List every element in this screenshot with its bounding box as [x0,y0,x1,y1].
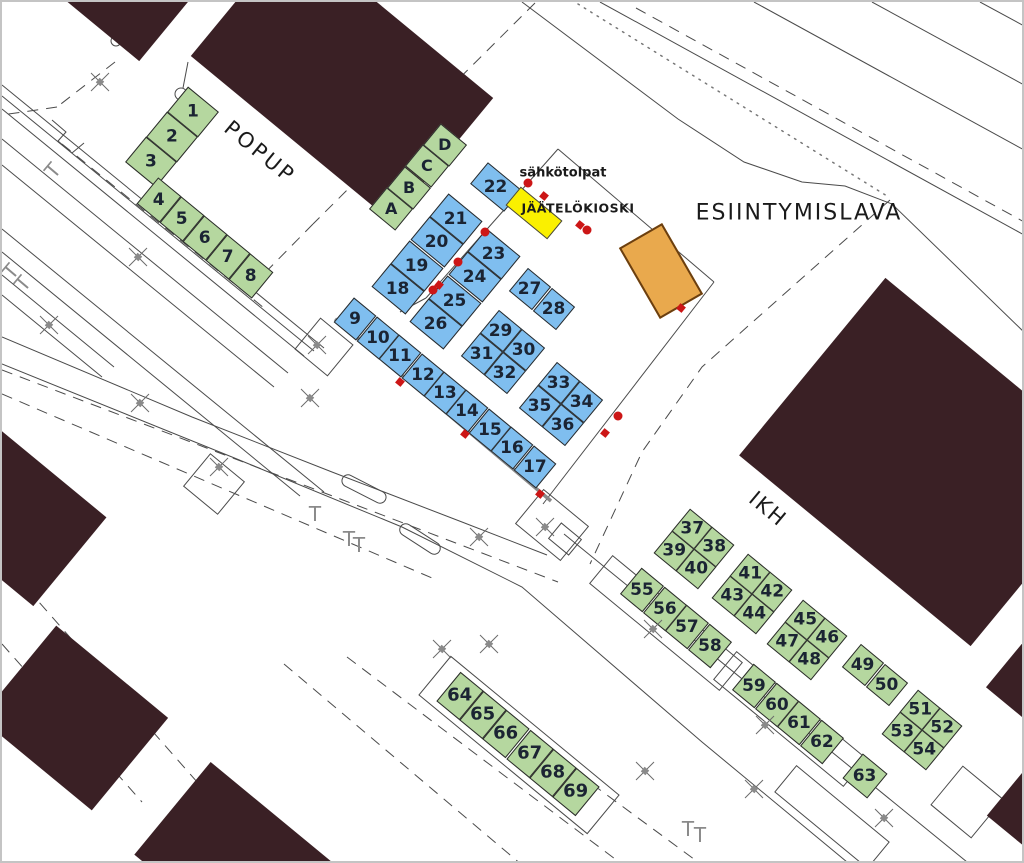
electric-pole-icon [600,428,610,438]
electric-pole-icon [539,191,549,201]
utility-pole-icon: T [352,533,366,557]
electric-pole-icon [614,412,623,421]
utility-pole-icon: T [308,502,322,526]
electric-pole-icon [460,429,470,439]
utility-pole-icon: T [39,158,66,184]
electric-pole-icon [583,226,592,235]
electric-pole-icon [524,179,533,188]
electric-pole-icon [676,303,686,313]
electric-pole-icon [481,228,490,237]
utility-pole-icon: T [681,817,695,841]
map-symbols: TTTTTTTT [2,2,1024,863]
electric-pole-icon [454,258,463,267]
site-plan-map: 12345678DCBA9101112131415161721201918222… [0,0,1024,863]
utility-pole-icon: T [693,823,707,847]
electric-pole-icon [535,489,545,499]
electric-pole-icon [395,377,405,387]
